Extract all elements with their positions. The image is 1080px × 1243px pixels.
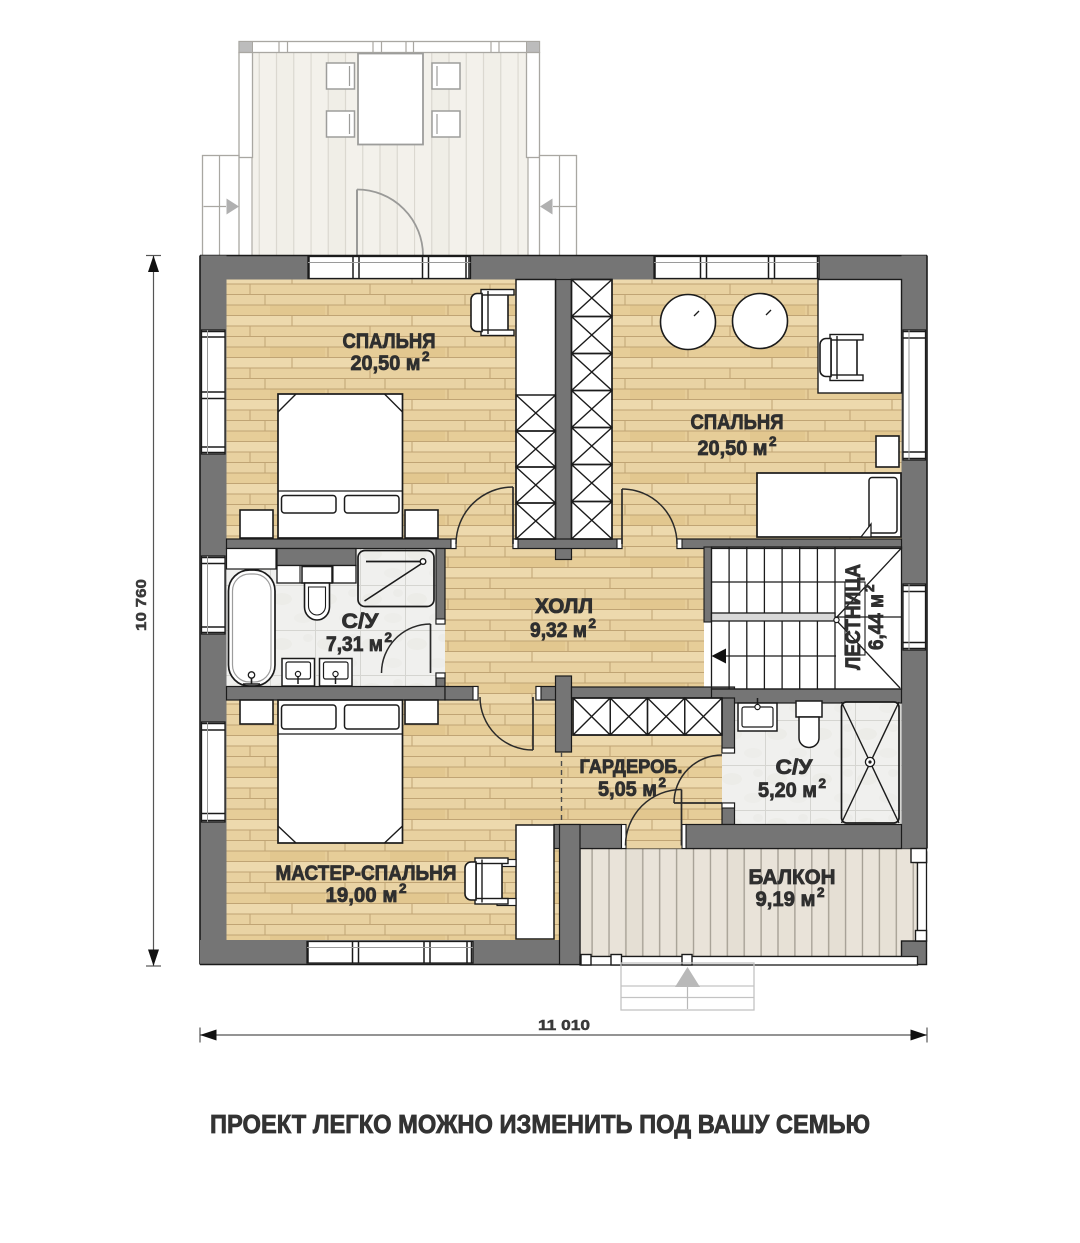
svg-text:СПАЛЬНЯ: СПАЛЬНЯ [691, 411, 784, 434]
svg-text:11 010: 11 010 [538, 1017, 590, 1034]
svg-text:ХОЛЛ: ХОЛЛ [535, 595, 593, 618]
svg-text:5,05 м: 5,05 м [598, 778, 657, 801]
svg-text:2: 2 [589, 616, 597, 631]
svg-text:2: 2 [817, 885, 825, 900]
svg-text:2: 2 [422, 349, 430, 364]
svg-text:20,50 м: 20,50 м [351, 352, 421, 375]
svg-text:9,32 м: 9,32 м [530, 619, 587, 642]
svg-text:2: 2 [819, 776, 827, 791]
svg-text:5,20 м: 5,20 м [758, 779, 817, 802]
svg-text:ПРОЕКТ ЛЕГКО МОЖНО ИЗМЕНИТЬ ПО: ПРОЕКТ ЛЕГКО МОЖНО ИЗМЕНИТЬ ПОД ВАШУ СЕМ… [210, 1109, 870, 1139]
svg-text:2: 2 [659, 775, 667, 790]
svg-text:2: 2 [769, 434, 777, 449]
svg-text:ЛЕСТНИЦА: ЛЕСТНИЦА [842, 564, 865, 670]
svg-text:2: 2 [862, 584, 877, 592]
svg-text:20,50 м: 20,50 м [698, 437, 768, 460]
svg-text:ГАРДЕРОБ.: ГАРДЕРОБ. [580, 757, 683, 778]
svg-text:С/У: С/У [342, 610, 380, 633]
svg-text:МАСТЕР-СПАЛЬНЯ: МАСТЕР-СПАЛЬНЯ [276, 862, 457, 885]
svg-text:2: 2 [385, 630, 393, 645]
svg-text:6,44 м: 6,44 м [865, 594, 888, 650]
svg-text:19,00 м: 19,00 м [326, 884, 398, 907]
svg-text:7,31 м: 7,31 м [326, 633, 383, 656]
svg-text:9,19 м: 9,19 м [756, 888, 816, 911]
svg-text:2: 2 [399, 881, 407, 896]
svg-text:С/У: С/У [776, 756, 814, 779]
svg-text:10 760: 10 760 [133, 579, 150, 631]
